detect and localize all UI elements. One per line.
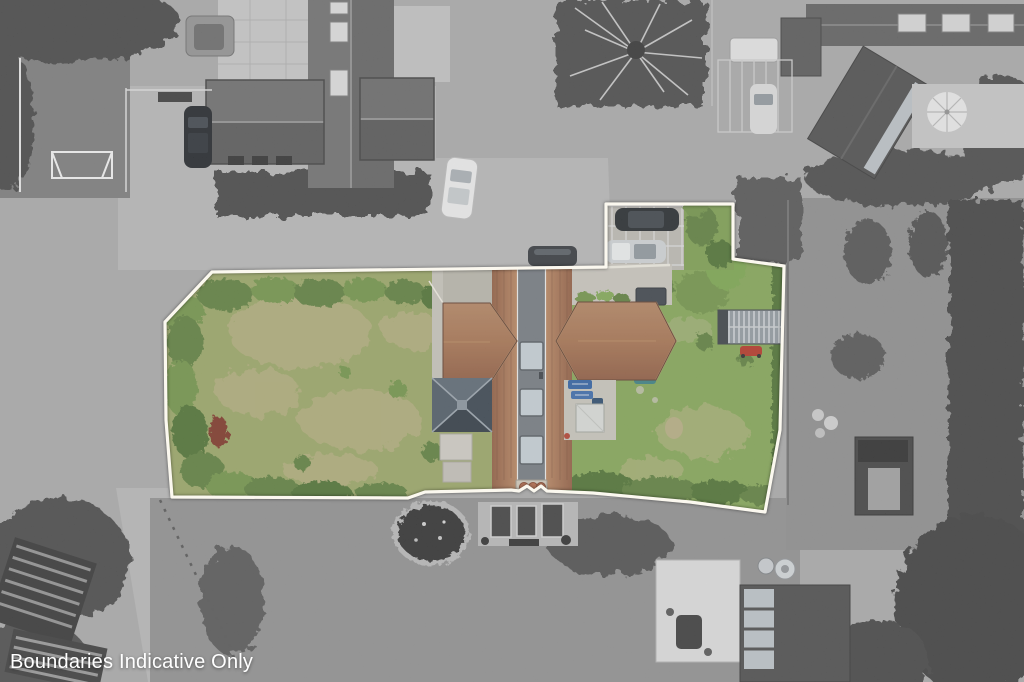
caption-boundaries-indicative: Boundaries Indicative Only [10,651,253,674]
scene-svg [0,0,1024,682]
photo-grain-overlay [0,0,1024,682]
aerial-photo: Boundaries Indicative Only [0,0,1024,682]
